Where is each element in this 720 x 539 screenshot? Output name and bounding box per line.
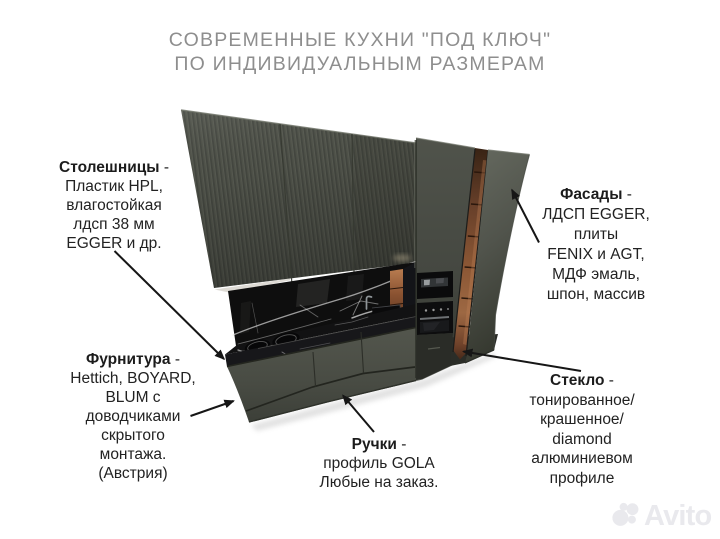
- svg-text:Avito: Avito: [644, 500, 712, 532]
